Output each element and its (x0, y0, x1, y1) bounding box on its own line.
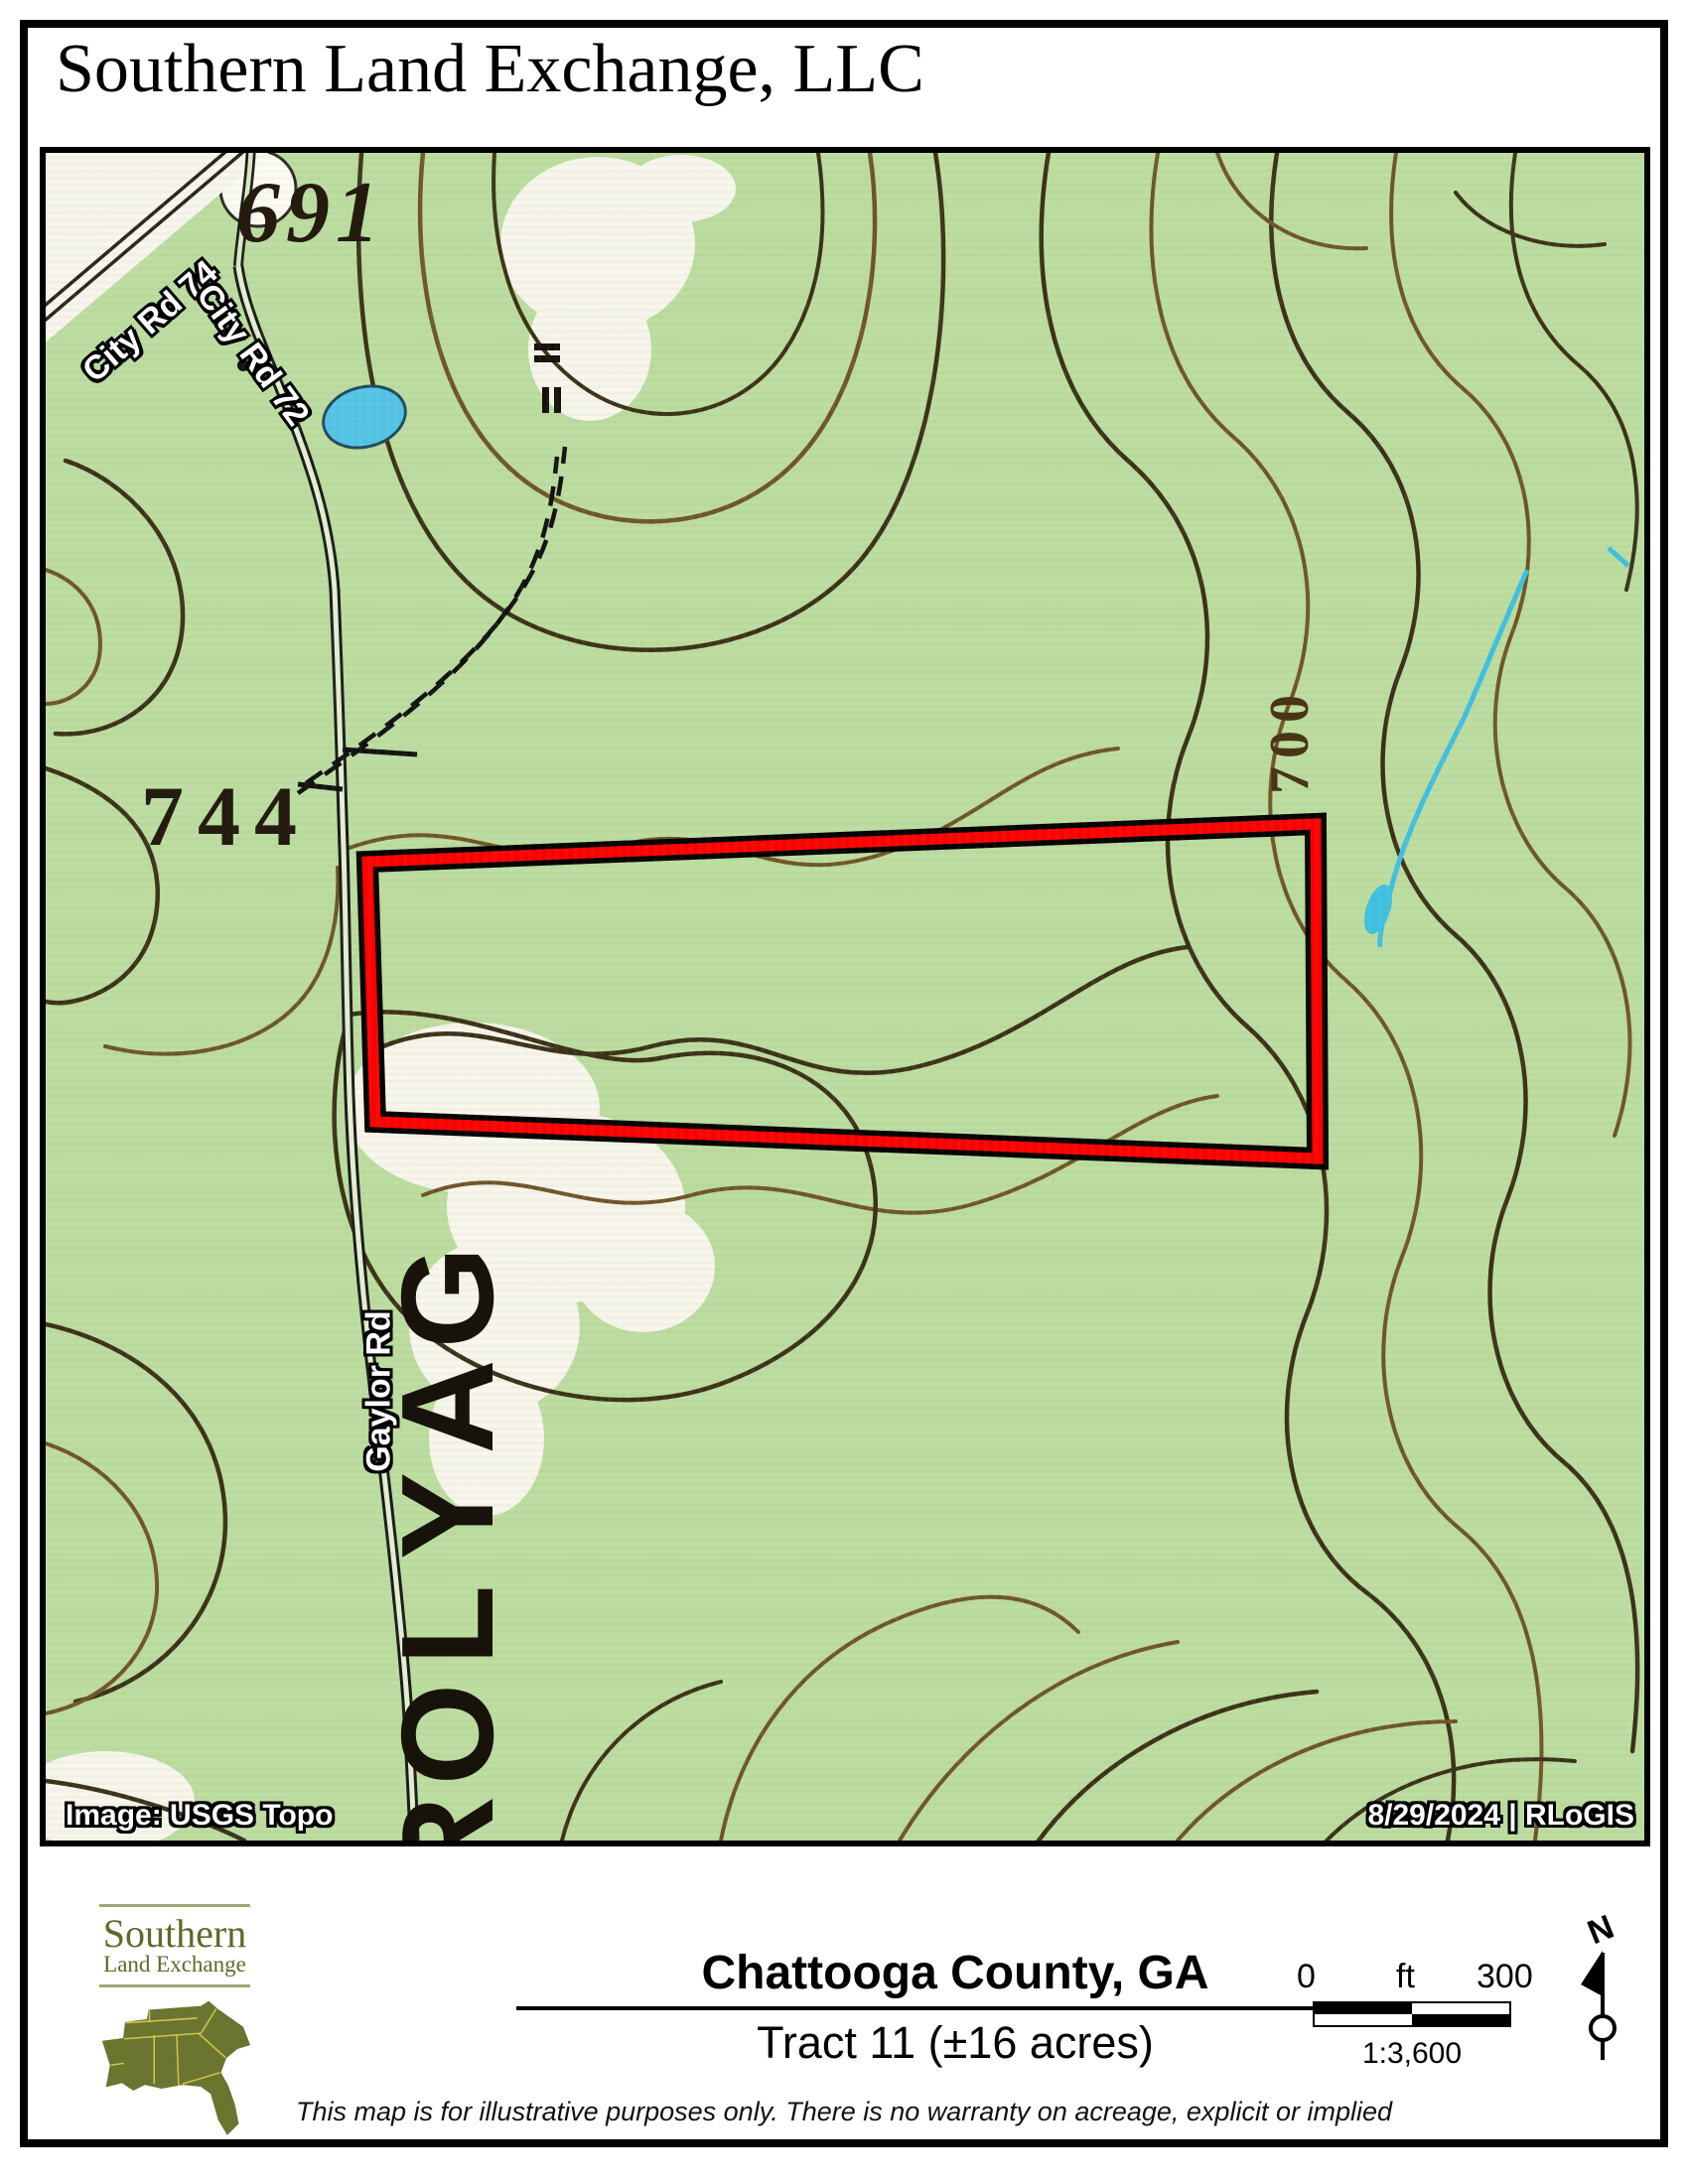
north-arrow: N (1567, 1911, 1636, 2090)
logo-rule-top (99, 1904, 250, 1907)
topo-basemap: City Rd 74 City Rd 72 691 744 700 Gaylor… (46, 153, 1644, 1841)
date-credit: 8/29/2024 | RLoGIS (1367, 1799, 1634, 1833)
elevation-label-744: 744 (141, 766, 311, 866)
disclaimer-text: This map is for illustrative purposes on… (0, 2097, 1688, 2127)
logo-name-southern: Southern (99, 1910, 250, 1957)
elevation-label-700: 700 (1258, 656, 1322, 825)
map-sheet: { "page": { "title": "Southern Land Exch… (0, 0, 1688, 2184)
gaylor-placename-large: GAYLOR (389, 1243, 506, 1846)
page-title: Southern Land Exchange, LLC (56, 30, 924, 109)
logo-rule-bottom (99, 1984, 250, 1987)
topo-map: City Rd 74 City Rd 72 691 744 700 Gaylor… (40, 147, 1650, 1846)
county-title: Chattooga County, GA (516, 1946, 1394, 2010)
scalebar-unit-label: ft (1396, 1958, 1415, 1996)
elevation-label-691: 691 (236, 163, 385, 263)
logo-name-land-exchange: Land Exchange (99, 1952, 250, 1978)
imagery-credit: Image: USGS Topo (66, 1799, 333, 1833)
scalebar-max-label: 300 (1477, 1958, 1533, 1996)
scale-bar (1313, 2001, 1511, 2027)
tract-label: Tract 11 (±16 acres) (516, 2017, 1394, 2069)
scale-ratio: 1:3,600 (1313, 2037, 1511, 2071)
scalebar-zero-label: 0 (1297, 1958, 1316, 1996)
